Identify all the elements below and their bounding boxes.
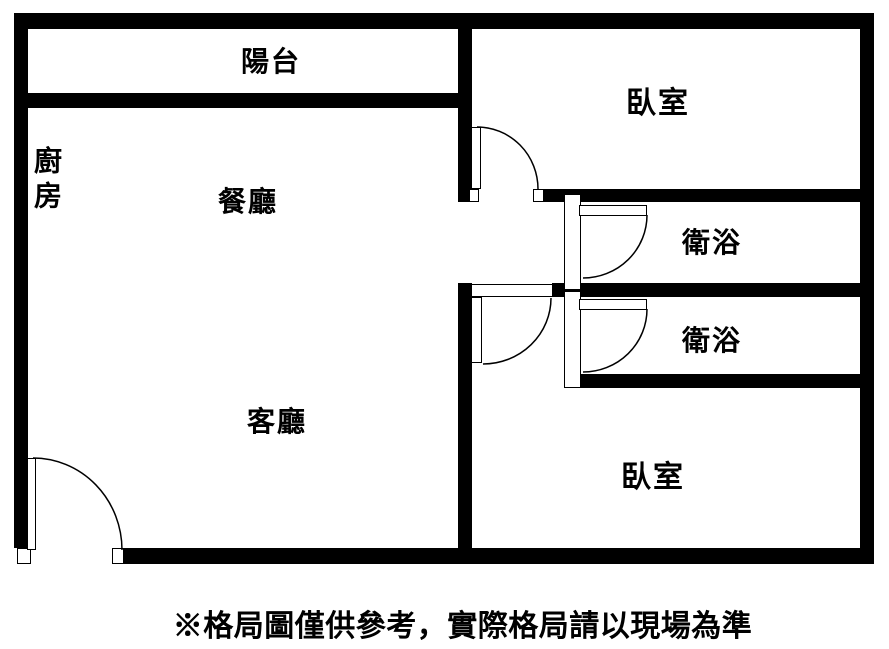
room-label-dining: 餐廳 [218,188,278,216]
floorplan-canvas: 陽台 廚房 餐廳 客廳 臥室 臥室 衛浴 衛浴 ※格局圖僅供參考，實際格局請以現… [0,0,889,649]
door-arcs-layer [0,0,889,649]
room-label-living: 客廳 [247,408,307,436]
door-arc-entry [33,458,122,550]
disclaimer-caption: ※格局圖僅供參考，實際格局請以現場為準 [36,601,889,645]
door-arc-bedroom-top [477,127,538,189]
room-label-kitchen: 廚房 [32,146,60,216]
door-arc-hallway [483,298,551,364]
room-label-bath-lower: 衛浴 [682,327,742,355]
room-label-bedroom-bottom: 臥室 [621,463,685,493]
room-label-balcony: 陽台 [241,48,301,76]
room-label-bedroom-top: 臥室 [626,89,690,119]
room-label-bath-upper: 衛浴 [682,229,742,257]
door-arc-bath-lower [583,309,647,372]
door-arc-bath-upper [583,215,647,278]
